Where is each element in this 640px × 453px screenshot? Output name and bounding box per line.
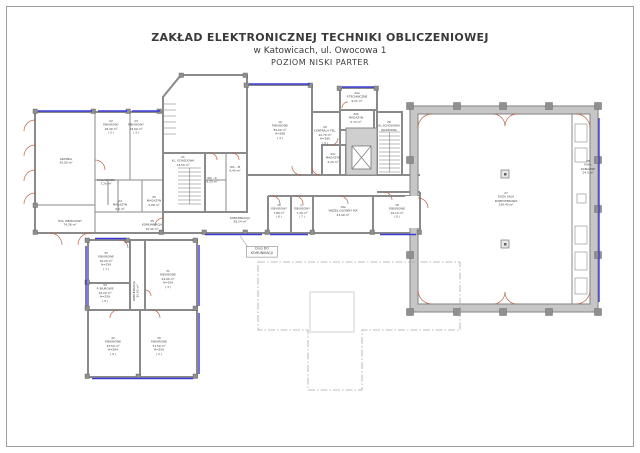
structural-columns: [33, 73, 602, 379]
room-label-wc-k: WC - K6,25 m²: [206, 177, 217, 185]
room-label-35: 35KOMUNIKACJA10,40 m²: [142, 220, 162, 232]
dashed-overhang-outline: [258, 262, 460, 390]
room-label-20: 20CENTRALA TEL.20,70 m²H=280( 5 ): [314, 126, 336, 146]
room-label-26-stairs: 26KL.SCHODOWAZJAZDOWA: [378, 121, 400, 133]
room-label-20b: 20bMAGAZYN5,72 m²: [349, 113, 363, 125]
room-label-20c: 20cMAGAZYN4,20 m²: [326, 153, 340, 165]
room-label-19: 19P.BIUROWE50,00 m²H=288( 4 ): [272, 121, 288, 141]
room-label-27-hall: 27DUŻA SALAKOMPUTEROWA236,40 m²: [495, 192, 518, 208]
floor-plan-page: ZAKŁAD ELEKTRONICZNEJ TECHNIKI OBLICZENI…: [0, 0, 640, 453]
room-label-21: 21KL. SCHODOWA14,50 m²: [172, 156, 194, 168]
floor-plan-drawing: [0, 0, 640, 453]
room-label-corridor-vertical: KOMUNIKACJA10,92 m²: [133, 281, 141, 301]
callout-line-2: KOMUNIKACJI: [247, 252, 277, 256]
room-label-22: 22P.BIUROWY18,40 m²( 2 ): [103, 120, 119, 136]
room-label-34: 34P. BIUROWE16,20 m²H=259( 9 ): [97, 284, 114, 304]
callout-box: CIĄG DO KOMUNIKACJI: [246, 246, 278, 258]
room-label-28: 28POM.KABLOWE24,5 m²: [581, 160, 595, 176]
room-label-25: 25MAGAZYN5,66 m²: [147, 196, 161, 208]
room-label-corridor-main: KOMUNIKACJA58,24 m²: [230, 217, 250, 225]
room-label-hol: HOL WEJŚCIOWY74,36 m²: [58, 220, 82, 228]
room-label-wc-m: WC - M6,40 m²: [229, 166, 240, 174]
room-label-24: 24MAGAZYN5,6 m²: [113, 200, 127, 212]
room-label-18: 18P.BIUROWE16,10 m²( 8 ): [389, 204, 405, 220]
room-label-20a: 20aP.TECHNICZNE9,21 m²: [347, 92, 368, 104]
hall-interior-columns: [501, 170, 509, 248]
room-label-17: 17P.BIUROWY7,20 m²( 7 ): [294, 204, 310, 220]
room-label-33: 33P.BIUROWE16,20 m²H=259( 1 ): [98, 252, 114, 272]
room-label-16: 16P.BIUROWY7,80 m²( 6 ): [271, 204, 287, 220]
room-label-30: 30P.BIUROWE31,50 m²H=259( 2 ): [151, 337, 167, 357]
room-label-32: 32P.BIUROWE33,50 m²H=264( 9 ): [105, 337, 121, 357]
room-label-magazynek: MAGAZYNEK7,26 m²: [97, 179, 115, 187]
room-label-23: 23P.BIUROWY18,60 m²( 3 ): [128, 120, 144, 136]
room-label-19a: 19aWĘZEŁ GŁÓWNY MA23,40 m²: [329, 206, 358, 218]
computer-hall-walls: [405, 106, 598, 312]
room-label-31: 31P.BIUROWE24,00 m²H=259( 3 ): [160, 270, 176, 290]
elevator: [346, 128, 377, 175]
room-label-szatnia: SZATNIA50,00 m²: [60, 158, 73, 166]
